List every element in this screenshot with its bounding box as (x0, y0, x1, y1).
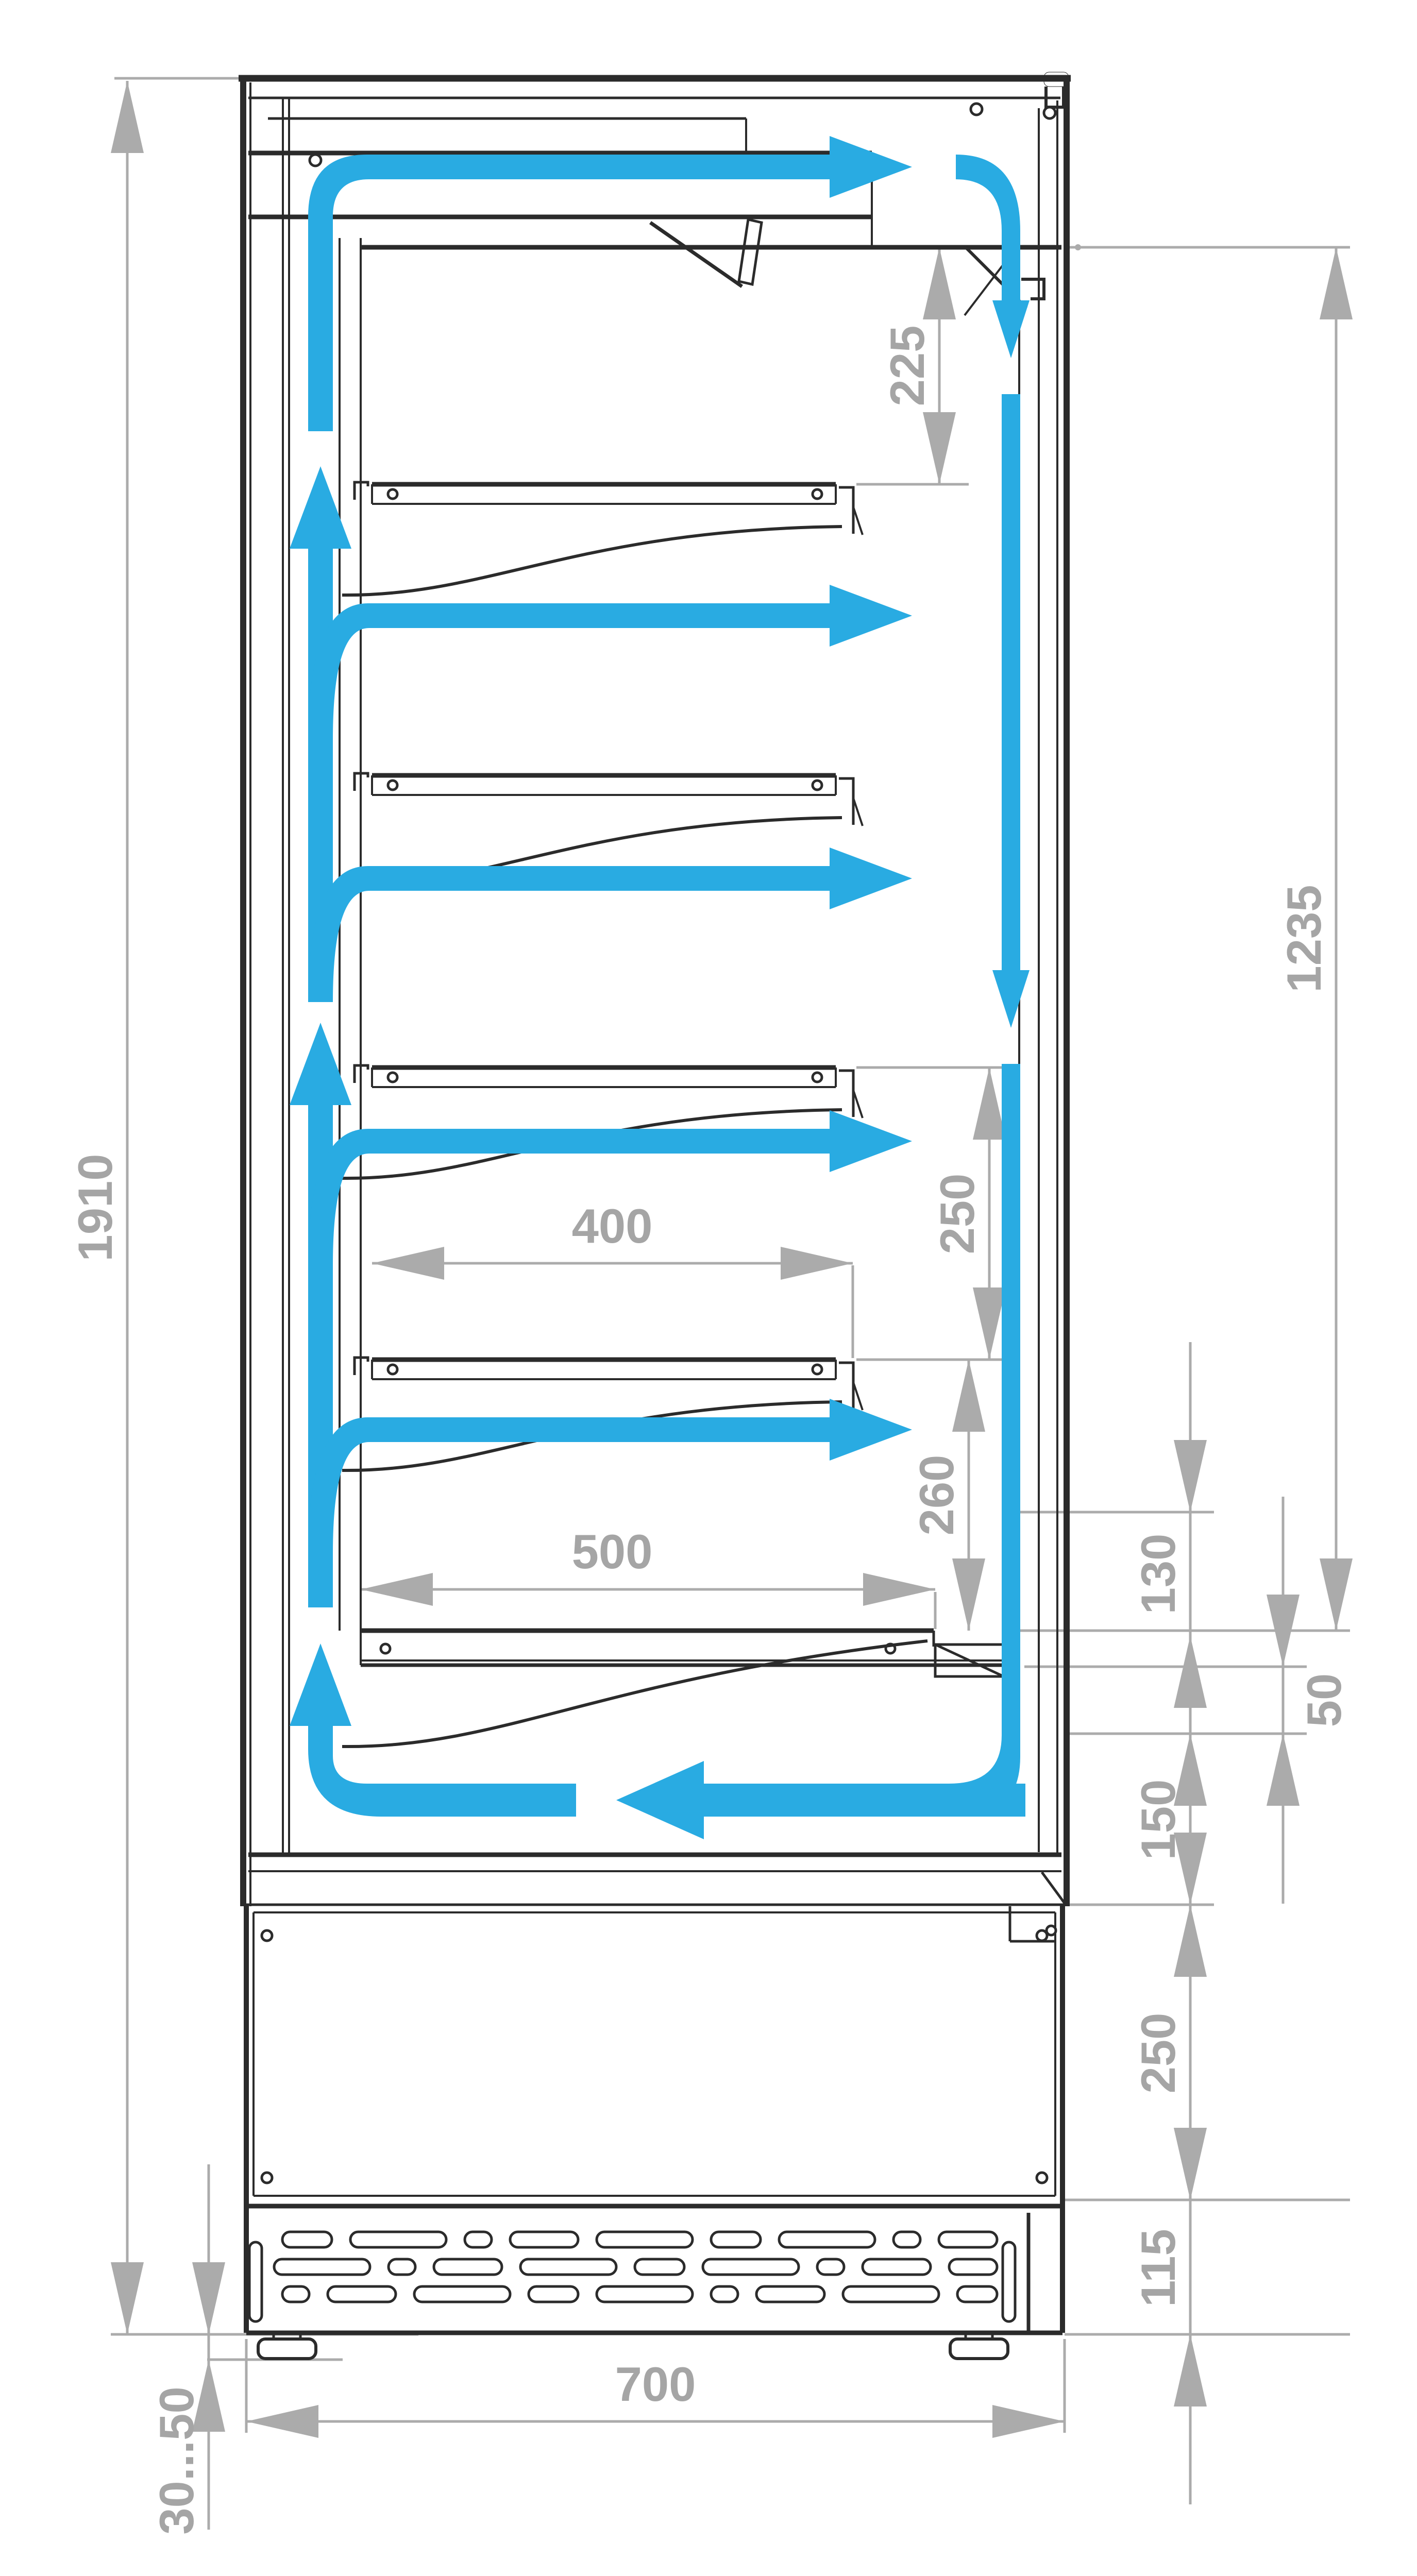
dim-arrowhead (1174, 1636, 1207, 1708)
grille-end-cap (1003, 2242, 1015, 2321)
dim-arrowhead (246, 2405, 318, 2438)
dim-return-gap (1267, 1497, 1300, 1904)
vent-slot (282, 2286, 309, 2302)
air-curtain-down-arrowhead (992, 300, 1030, 358)
dim-label-overall-height: 1910 (68, 1154, 122, 1261)
screw (388, 489, 397, 499)
screw (310, 155, 321, 166)
vent-slot (957, 2286, 997, 2302)
screw (262, 2173, 272, 2183)
vent-slot (635, 2259, 684, 2275)
screw (1044, 107, 1055, 118)
vent-slot (389, 2259, 415, 2275)
dim-label-vent-height: 115 (1131, 2229, 1185, 2307)
dim-arrowhead (1267, 1734, 1300, 1806)
shelf-front-clip (853, 1382, 863, 1410)
bottom-well (342, 1514, 1018, 1747)
shelf-4 (342, 1358, 863, 1470)
screw (971, 104, 982, 115)
dim-arrowhead (111, 2262, 144, 2334)
return-flow-segment (381, 1784, 576, 1817)
vent-slot (328, 2286, 396, 2302)
dim-arrowhead (1320, 247, 1353, 319)
vent-slot (893, 2232, 920, 2247)
air-curtain-down-arrowhead (992, 970, 1030, 1028)
dim-label-well-to-base: 150 (1131, 1780, 1185, 1860)
dim-arrowhead (1174, 1905, 1207, 1977)
shelf-front-clip (853, 1090, 863, 1118)
screw (388, 1365, 397, 1374)
shelf-3 (342, 1065, 863, 1178)
foot-pad (950, 2339, 1008, 2359)
deflector-vane (739, 219, 762, 284)
vent-slot (711, 2286, 738, 2302)
shelf-outlet-arrowhead-1 (830, 585, 912, 647)
screw (262, 1930, 272, 1941)
vent-slot (779, 2232, 875, 2247)
dimension-lines (111, 81, 1353, 2530)
vent-slot (703, 2259, 799, 2275)
screw (388, 781, 397, 790)
dim-label-canopy-clearance: 225 (880, 326, 934, 406)
dim-label-machine-compartment: 250 (1131, 2013, 1185, 2094)
screw (381, 1644, 390, 1653)
well-cable (342, 1641, 927, 1747)
shelf-cable (342, 527, 842, 595)
vent-slot (843, 2286, 939, 2302)
shelf-outlet-arrow-4 (308, 1417, 830, 1553)
vent-slot (939, 2232, 997, 2247)
dim-arrowhead (923, 412, 956, 484)
dim-label-overall-depth: 700 (615, 2357, 696, 2411)
vent-slot (274, 2259, 370, 2275)
shelf-outlet-arrow-2 (308, 866, 830, 1002)
reference-dot (1075, 244, 1081, 250)
shelf-outlet-arrowhead-3 (830, 1110, 912, 1172)
air-deflector (650, 223, 742, 286)
duct-to-canopy-elbow (308, 155, 830, 431)
shelf-front-clip (853, 507, 863, 535)
dim-arrowhead (952, 1558, 985, 1631)
dim-label-air-curtain: 1235 (1277, 885, 1331, 992)
shelf-1 (342, 482, 863, 595)
foot-pad (258, 2339, 316, 2359)
screw (1047, 1926, 1056, 1935)
dim-arrowhead (923, 247, 956, 319)
dim-arrowhead (1320, 1558, 1353, 1631)
dim-label-bottom-clearance: 260 (909, 1455, 964, 1536)
dim-arrowhead (372, 1247, 444, 1280)
adjustable-feet (258, 2333, 1008, 2359)
vent-slot (597, 2286, 693, 2302)
vent-slot (510, 2232, 578, 2247)
dim-label-return-offset: 130 (1131, 1534, 1185, 1615)
vent-slot (465, 2232, 492, 2247)
dim-arrowhead (1174, 2128, 1207, 2200)
base-corner-diagonal (1042, 1872, 1065, 1903)
return-to-duct-elbow (308, 1726, 381, 1817)
screw (813, 489, 822, 499)
shelf-outlet-arrowhead-4 (830, 1399, 912, 1461)
dim-arrowhead (781, 1247, 853, 1280)
vent-slot (350, 2232, 446, 2247)
discharge-hook (1021, 279, 1044, 299)
air-curtain-segment (1002, 394, 1020, 970)
return-flow-segment (704, 1784, 1025, 1817)
dim-label-well-depth: 500 (572, 1524, 653, 1579)
dim-arrowhead (111, 81, 144, 153)
air-curtain-top-bend (956, 155, 1020, 301)
shelves (342, 482, 863, 1470)
adjustable-foot-1 (258, 2333, 316, 2359)
machine-compartment (246, 1905, 1062, 2359)
adjustable-foot-2 (950, 2333, 1008, 2359)
dim-label-shelf-depth: 400 (572, 1199, 653, 1253)
screw (813, 781, 822, 790)
screw (813, 1073, 822, 1082)
vent-slot (597, 2232, 693, 2247)
dim-arrowhead (973, 1067, 1006, 1140)
dim-arrowhead (1174, 2334, 1207, 2406)
duct-up-arrowhead (290, 1643, 351, 1726)
dim-arrowhead (361, 1573, 433, 1606)
dim-arrowhead (192, 2262, 225, 2334)
vent-slot (529, 2286, 578, 2302)
dim-arrowhead (992, 2405, 1065, 2438)
screw (388, 1073, 397, 1082)
vent-slot (282, 2232, 332, 2247)
return-left-arrowhead (616, 1761, 704, 1839)
grille-end-cap (249, 2242, 262, 2321)
vent-slot (949, 2259, 997, 2275)
duct-up-arrowhead (290, 1023, 351, 1105)
vent-slot (434, 2259, 502, 2275)
shelf-front-clip (853, 798, 863, 826)
vent-slot (817, 2259, 844, 2275)
vent-slot (756, 2286, 824, 2302)
vent-slot (414, 2286, 510, 2302)
cabinet-section-drawing: 1910 225 1235 250 400 260 500 130 50 150… (0, 0, 1417, 2576)
duct-up-arrowhead (290, 466, 351, 549)
screw (1037, 2173, 1047, 2183)
vent-slot (520, 2259, 616, 2275)
dim-label-shelf-spacing: 250 (930, 1174, 984, 1255)
dim-label-return-gap: 50 (1297, 1673, 1351, 1727)
shelf-outlet-arrow-1 (308, 603, 830, 739)
dim-arrowhead (973, 1287, 1006, 1360)
vent-slot (711, 2232, 761, 2247)
vent-slot (863, 2259, 931, 2275)
screw (813, 1365, 822, 1374)
dim-arrowhead (863, 1573, 935, 1606)
dim-arrowhead (1174, 1440, 1207, 1512)
dim-arrowhead (952, 1360, 985, 1432)
dim-label-feet-range: 30...50 (149, 2386, 204, 2534)
shelf-outlet-arrow-3 (308, 1129, 830, 1265)
shelf-outlet-arrowhead-2 (830, 848, 912, 909)
ventilation-grille (274, 2232, 997, 2302)
